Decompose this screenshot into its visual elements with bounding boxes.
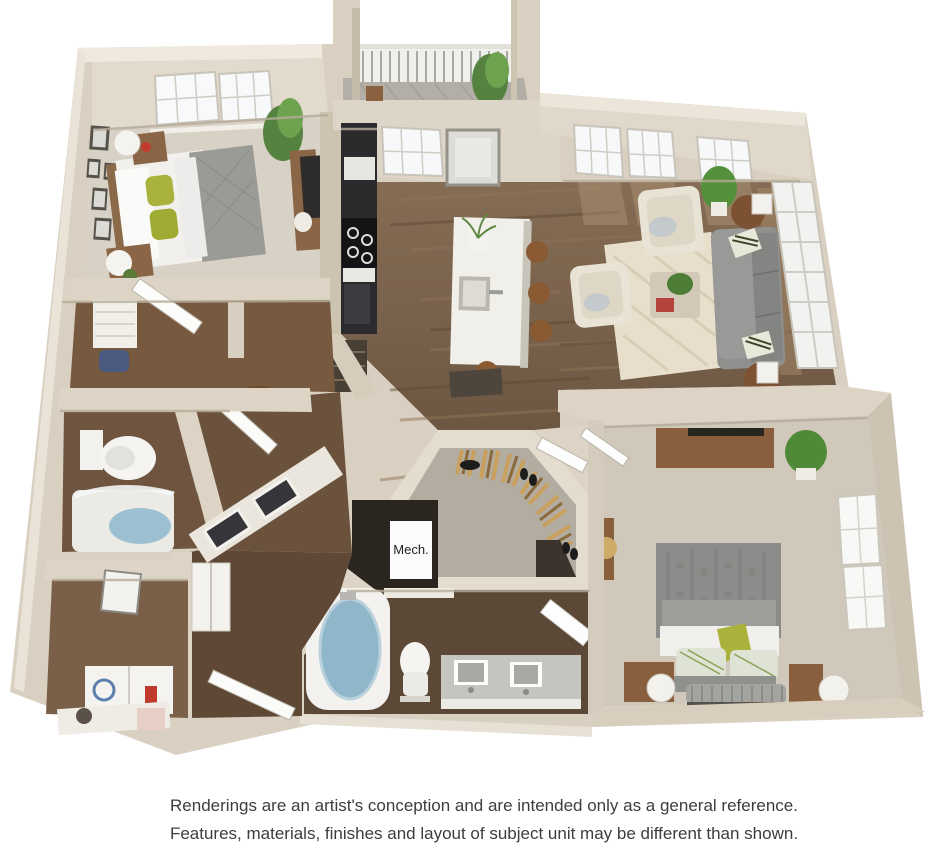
svg-text:Mech.: Mech. (393, 542, 428, 557)
